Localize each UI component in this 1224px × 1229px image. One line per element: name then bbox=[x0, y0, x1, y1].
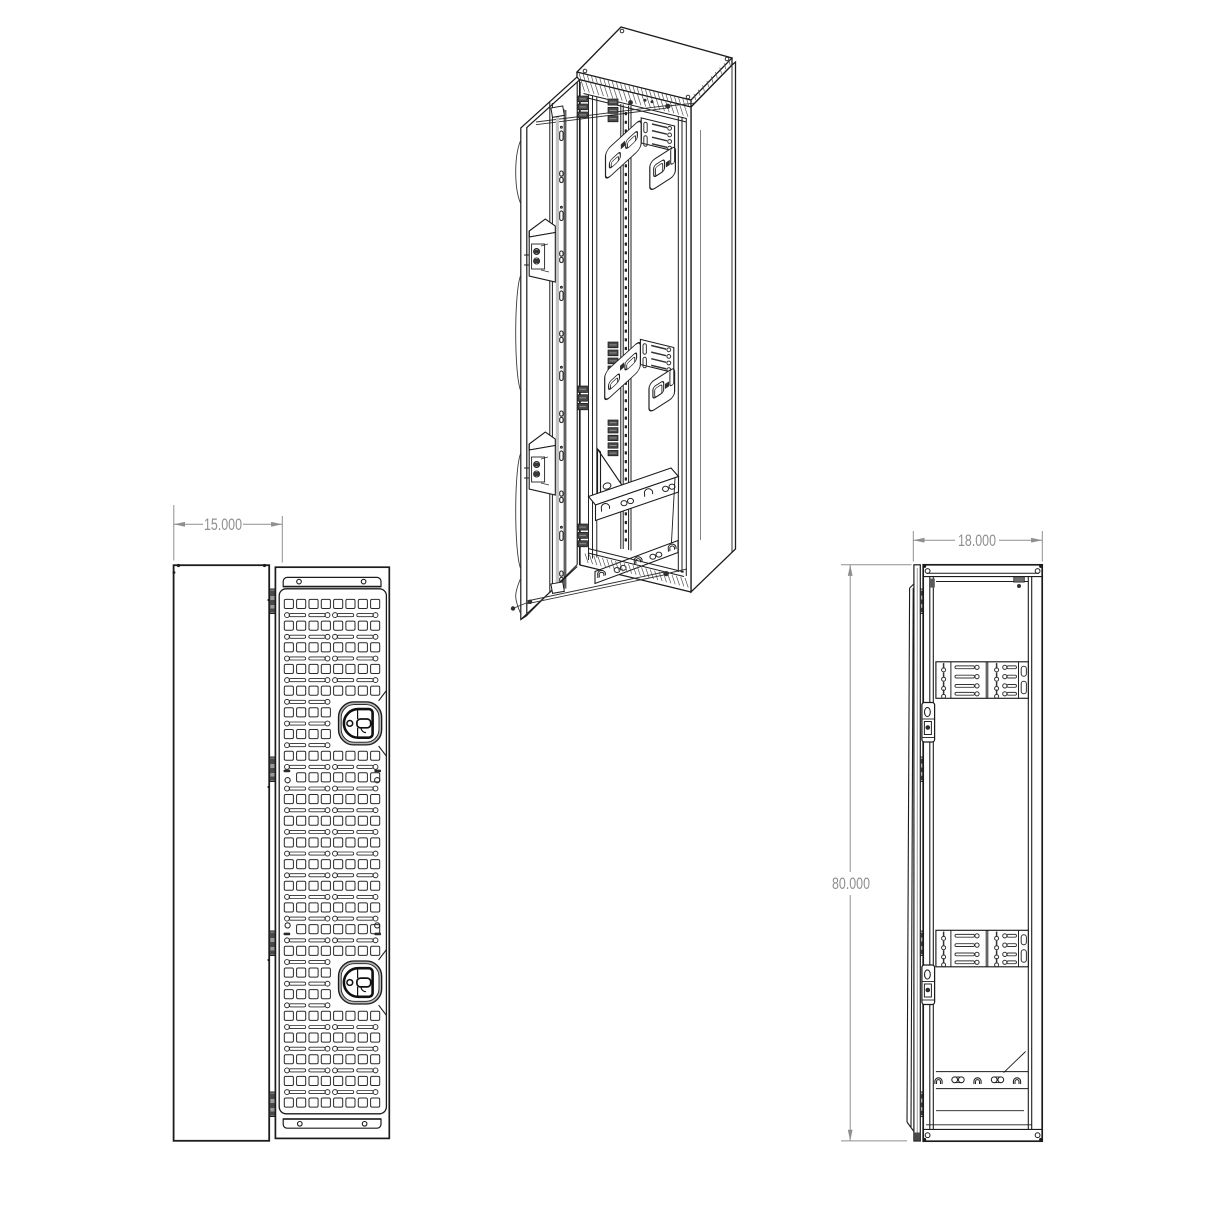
svg-text:80.000: 80.000 bbox=[832, 875, 870, 893]
svg-text:15.000: 15.000 bbox=[204, 516, 242, 534]
svg-text:18.000: 18.000 bbox=[958, 532, 996, 550]
